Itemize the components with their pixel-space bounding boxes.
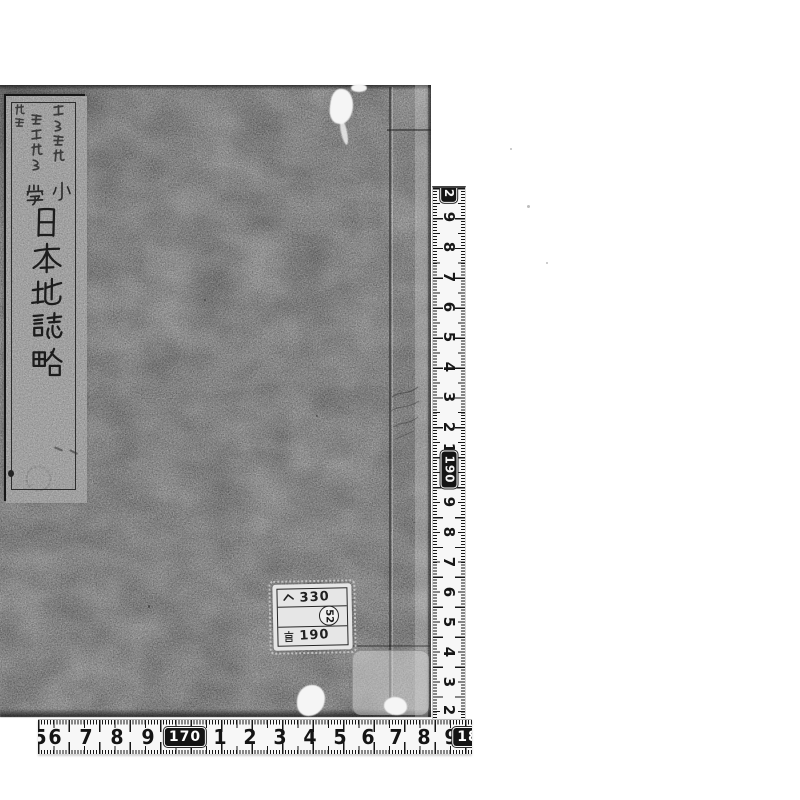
kanji-miya-mark	[283, 630, 294, 642]
horizontal-scale-ruler: 5 6 7 8 9 170 1 2 3 4 5 6 7 8 9 18	[38, 719, 472, 754]
ruler-number: 7	[389, 725, 402, 749]
ruler-number: 3	[440, 388, 458, 406]
title-kanji-chi	[24, 276, 70, 310]
ink-dot	[8, 470, 14, 477]
cover-speck	[316, 415, 318, 417]
pencil-scribble-marks	[388, 383, 426, 445]
small-kanji-glyph	[52, 134, 65, 147]
title-kanji-nichi	[24, 206, 70, 240]
ruler-number: 7	[440, 553, 458, 571]
ruler-box-190: 190	[433, 454, 465, 484]
small-kanji-glyph	[14, 117, 25, 128]
circled-number-52: 52	[319, 606, 339, 626]
ruler-number: 2	[243, 725, 256, 749]
call-number-label: 330 52 190	[272, 583, 352, 651]
ruler-box-label: 190	[442, 451, 457, 487]
editor-column-left	[14, 104, 25, 128]
ruler-box-180: 18	[453, 728, 472, 746]
ruler-number: 3	[440, 673, 458, 691]
ruler-number: 7	[440, 268, 458, 286]
cover-speck	[204, 299, 206, 301]
call-number-row-3: 190	[278, 626, 347, 646]
ruler-number: 2	[440, 418, 458, 436]
title-kanji-shi	[24, 311, 70, 345]
small-kanji-glyph	[30, 158, 43, 171]
ruler-number: 2	[440, 701, 458, 719]
small-kanji-glyph	[14, 104, 25, 115]
call-number-190: 190	[299, 627, 330, 644]
crease-mark-top	[387, 129, 431, 131]
ruler-number: 4	[440, 358, 458, 376]
dust-speck	[527, 205, 530, 208]
book-cover: 330 52 190	[0, 85, 431, 717]
small-kanji-glyph	[52, 119, 65, 132]
tear-damage-bottom-right	[384, 697, 407, 715]
ruler-number: 8	[440, 523, 458, 541]
ruler-number: 3	[273, 725, 286, 749]
faint-round-stamp	[26, 466, 51, 491]
ruler-number: 7	[79, 725, 92, 749]
call-number-330: 330	[299, 589, 330, 606]
scan-background: 330 52 190 2	[0, 0, 800, 800]
dust-speck	[510, 148, 512, 150]
ruler-number: 4	[303, 725, 316, 749]
vertical-scale-ruler: 2 9 8 7 6 5 4 3 2 1 190 9 8 7 6 5 4 3 2	[432, 186, 466, 722]
ruler-number: 5	[333, 725, 346, 749]
subtitle-sho-calligraphy	[50, 178, 74, 209]
ruler-number: 6	[361, 725, 374, 749]
ruler-number: 9	[141, 725, 154, 749]
title-calligraphy	[24, 206, 70, 380]
ruler-number: 8	[440, 238, 458, 256]
ruler-number: 9	[440, 208, 458, 226]
call-number-row-2: 52	[278, 606, 347, 627]
ruler-number: 5	[38, 725, 47, 749]
ruler-box-label: 2	[441, 186, 456, 202]
small-kanji-glyph	[30, 113, 43, 126]
editor-column-middle	[30, 113, 43, 171]
call-number-grid: 330 52 190	[276, 587, 348, 646]
editor-column-right	[52, 104, 65, 162]
dust-speck	[546, 262, 548, 264]
ruler-number: 9	[440, 493, 458, 511]
ruler-number: 6	[48, 725, 61, 749]
call-number-row-1: 330	[277, 588, 346, 607]
ruler-number: 6	[440, 583, 458, 601]
ruler-number: 5	[440, 328, 458, 346]
small-kanji-glyph	[52, 104, 65, 117]
ruler-number: 8	[110, 725, 123, 749]
title-kanji-hon	[24, 241, 70, 275]
small-kanji-glyph	[52, 149, 65, 162]
circled-number-text: 52	[323, 609, 334, 623]
tear-damage-top-edge	[351, 84, 367, 92]
small-kanji-glyph	[30, 128, 43, 141]
small-kanji-glyph	[30, 143, 43, 156]
ruler-number: 5	[440, 613, 458, 631]
ruler-number: 6	[440, 298, 458, 316]
title-slip	[4, 94, 85, 501]
ruler-box-200: 2	[433, 186, 465, 206]
ruler-number: 8	[417, 725, 430, 749]
title-kanji-ryaku	[24, 346, 70, 380]
cover-speck	[148, 605, 150, 608]
ruler-number: 1	[213, 725, 226, 749]
ruler-number: 4	[440, 643, 458, 661]
ruler-box-170: 170	[165, 728, 205, 746]
katakana-he-mark	[282, 593, 294, 603]
